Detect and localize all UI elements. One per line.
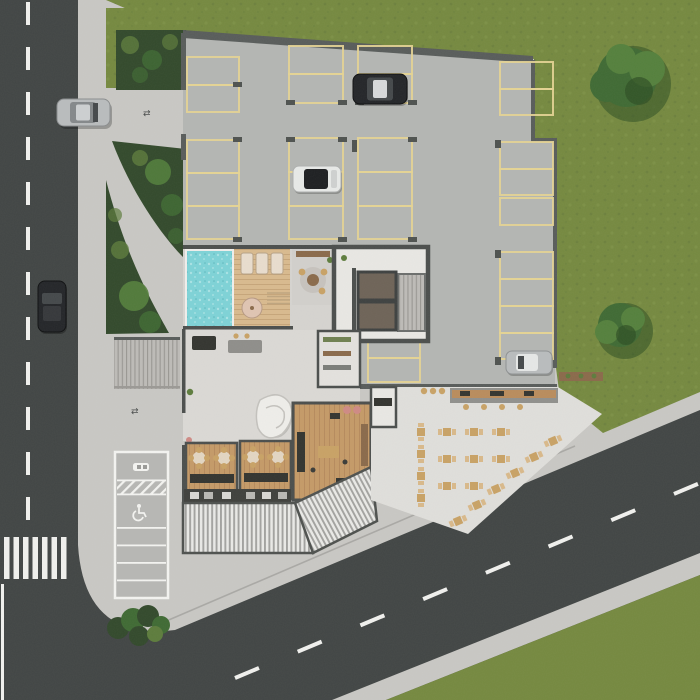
render-grain	[0, 0, 700, 700]
site-plan-render: ⇄ ⇄	[0, 0, 700, 700]
site-plan: ⇄ ⇄	[0, 0, 700, 700]
